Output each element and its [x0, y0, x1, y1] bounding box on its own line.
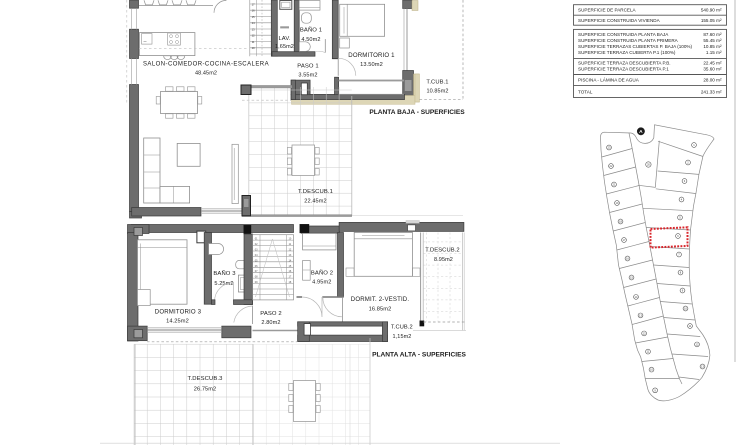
- svg-text:PASO 1: PASO 1: [297, 64, 318, 70]
- svg-text:10.85m2: 10.85m2: [426, 89, 448, 95]
- svg-text:4.95m2: 4.95m2: [312, 280, 331, 286]
- svg-text:22.45m2: 22.45m2: [304, 199, 326, 205]
- svg-text:10.85 m²: 10.85 m²: [703, 44, 722, 49]
- svg-text:SUPERFICIE CONSTRUIDA PLANTA B: SUPERFICIE CONSTRUIDA PLANTA BAJA: [578, 32, 669, 37]
- svg-text:T.CUB.1: T.CUB.1: [426, 80, 448, 86]
- svg-text:SUPERFICIE TERRAZA CUBIERTA P.: SUPERFICIE TERRAZA CUBIERTA P.1 (100%): [578, 50, 676, 55]
- svg-text:SUPERFICIE CONSTRUIDA PLANTA P: SUPERFICIE CONSTRUIDA PLANTA PRIMERA: [578, 38, 679, 43]
- svg-text:2.80m2: 2.80m2: [261, 320, 280, 326]
- svg-text:T.DESCUB.2: T.DESCUB.2: [425, 247, 460, 253]
- svg-text:241.33 m²: 241.33 m²: [701, 90, 722, 95]
- svg-text:DORMITORIO 1: DORMITORIO 1: [348, 52, 395, 59]
- svg-text:540.90 m²: 540.90 m²: [701, 8, 722, 13]
- svg-text:8.95m2: 8.95m2: [434, 257, 453, 263]
- svg-text:SUPERFICIE TERRAZA DESCUBIERTA: SUPERFICIE TERRAZA DESCUBIERTA P.1: [578, 67, 669, 72]
- svg-text:A: A: [639, 129, 643, 135]
- svg-text:T.DESCUB.1: T.DESCUB.1: [298, 189, 333, 195]
- svg-text:14.25m2: 14.25m2: [166, 319, 189, 325]
- svg-text:DORMITORIO 3: DORMITORIO 3: [155, 309, 202, 316]
- svg-text:1,65m2: 1,65m2: [275, 44, 294, 50]
- svg-text:155.05 m²: 155.05 m²: [701, 18, 722, 23]
- svg-text:16.85m2: 16.85m2: [369, 307, 392, 313]
- svg-text:T.CUB.2: T.CUB.2: [391, 325, 413, 331]
- svg-text:BAÑO 2: BAÑO 2: [311, 270, 333, 277]
- svg-text:SUPERFICIE TERRAZA DESCUBIERTA: SUPERFICIE TERRAZA DESCUBIERTA P.B.: [578, 61, 671, 66]
- svg-text:DORMIT. 2-VESTID.: DORMIT. 2-VESTID.: [351, 296, 410, 303]
- svg-text:26.75m2: 26.75m2: [194, 387, 216, 393]
- svg-text:BAÑO 3: BAÑO 3: [213, 270, 236, 277]
- svg-text:PLANTA ALTA - SUPERFICIES: PLANTA ALTA - SUPERFICIES: [372, 352, 466, 359]
- svg-text:1,15m2: 1,15m2: [393, 334, 412, 340]
- svg-text:28.00 m²: 28.00 m²: [703, 78, 722, 83]
- svg-text:1.15 m²: 1.15 m²: [706, 50, 722, 55]
- svg-text:48.45m2: 48.45m2: [195, 71, 217, 77]
- svg-text:55.45 m²: 55.45 m²: [703, 38, 722, 43]
- svg-text:PISCINA - LÁMINA DE AGUA: PISCINA - LÁMINA DE AGUA: [578, 77, 640, 83]
- svg-text:BAÑO 1: BAÑO 1: [300, 27, 322, 34]
- svg-text:SUPERFICIE CONSTRUIDA VIVIENDA: SUPERFICIE CONSTRUIDA VIVIENDA: [578, 18, 661, 23]
- svg-text:LAV.: LAV.: [278, 36, 290, 42]
- svg-text:TOTAL: TOTAL: [578, 90, 593, 95]
- svg-text:87.60 m²: 87.60 m²: [703, 32, 722, 37]
- svg-text:SUPERFICIE DE PARCELA: SUPERFICIE DE PARCELA: [578, 8, 637, 13]
- svg-text:SUPERFICIE TERRAZAS CUBIERTAS: SUPERFICIE TERRAZAS CUBIERTAS P. BAJA (1…: [578, 44, 692, 49]
- svg-text:SALON-COMEDOR-COCINA-ESCALERA: SALON-COMEDOR-COCINA-ESCALERA: [143, 62, 269, 68]
- svg-text:13.50m2: 13.50m2: [360, 62, 383, 68]
- svg-text:3.55m2: 3.55m2: [298, 73, 317, 79]
- svg-text:PASO 2: PASO 2: [260, 311, 281, 317]
- svg-text:22.45 m²: 22.45 m²: [703, 61, 722, 66]
- svg-text:T.DESCUB.3: T.DESCUB.3: [187, 376, 223, 382]
- svg-text:35.60 m²: 35.60 m²: [703, 67, 722, 72]
- svg-text:5.25m2: 5.25m2: [214, 281, 233, 287]
- svg-text:PLANTA BAJA - SUPERFICIES: PLANTA BAJA - SUPERFICIES: [369, 109, 465, 116]
